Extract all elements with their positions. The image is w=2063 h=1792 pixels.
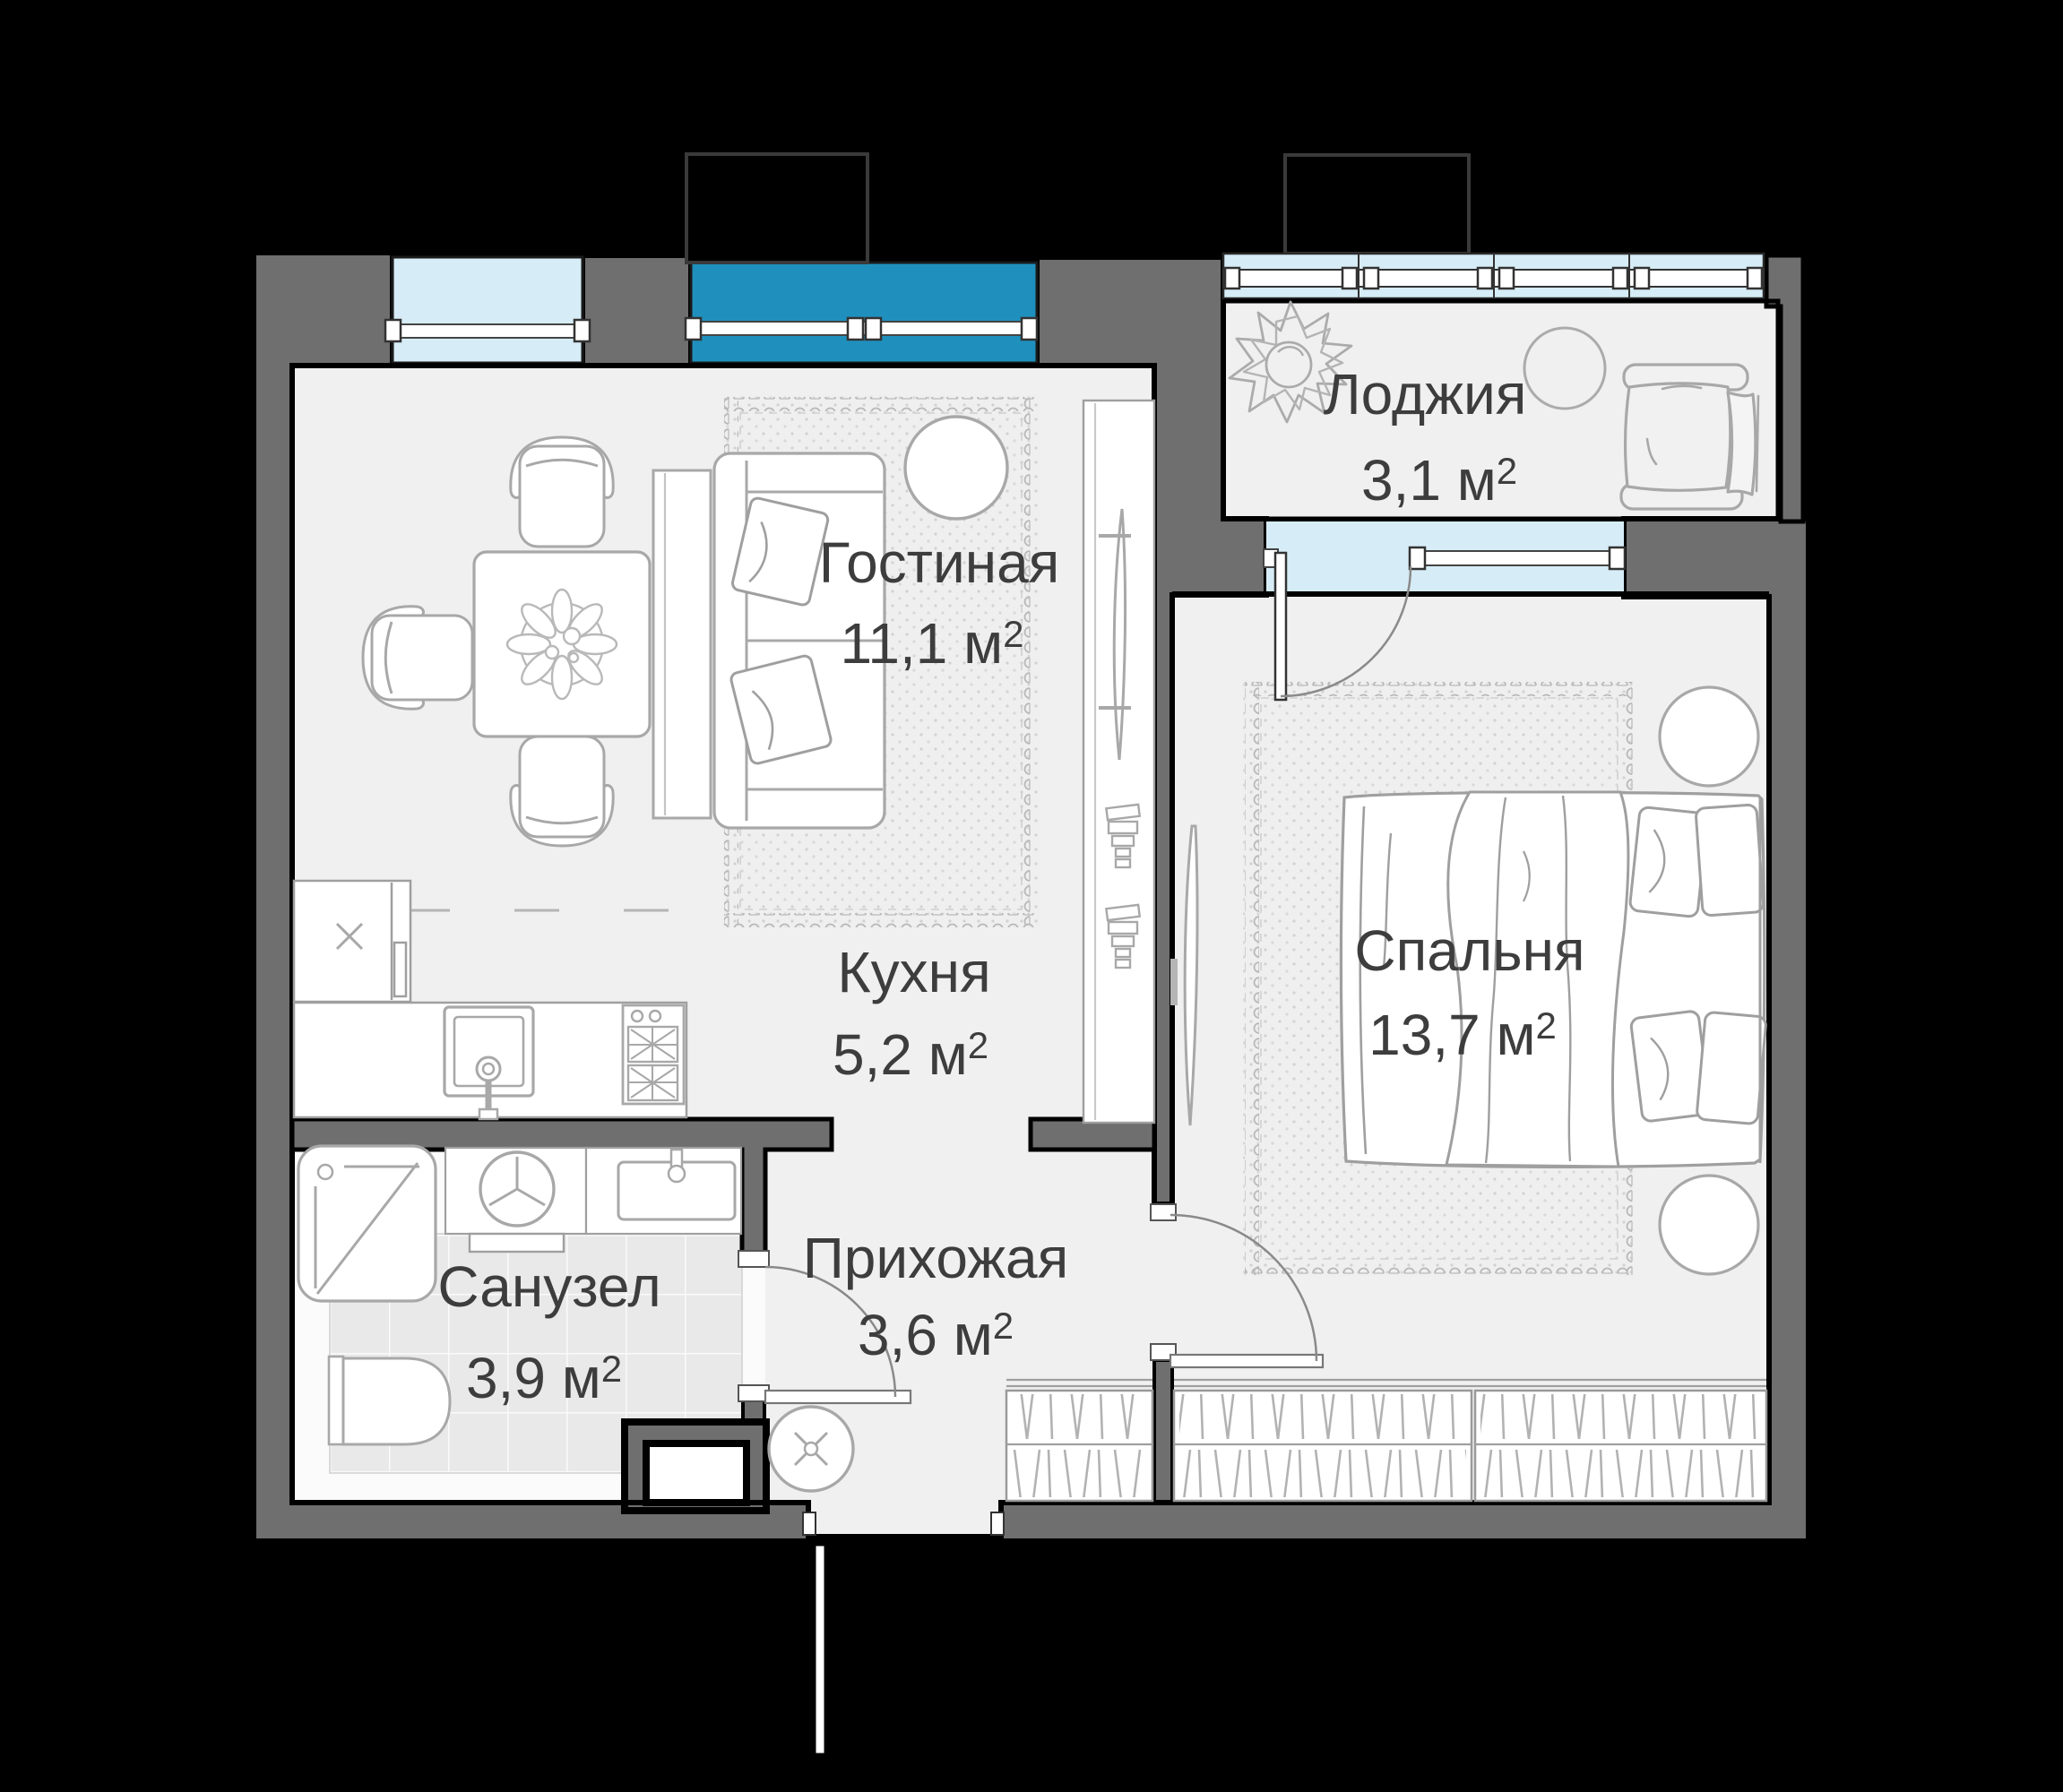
svg-text:Спальня: Спальня xyxy=(1354,918,1584,983)
svg-text:Прихожая: Прихожая xyxy=(803,1226,1069,1290)
svg-text:3,9 м2: 3,9 м2 xyxy=(466,1346,622,1410)
svg-text:Кухня: Кухня xyxy=(837,940,990,1004)
svg-text:3,6 м2: 3,6 м2 xyxy=(858,1303,1014,1367)
svg-text:3,1 м2: 3,1 м2 xyxy=(1361,448,1517,513)
svg-text:5,2 м2: 5,2 м2 xyxy=(833,1022,988,1087)
svg-text:Санузел: Санузел xyxy=(437,1254,660,1319)
svg-text:13,7 м2: 13,7 м2 xyxy=(1368,1003,1557,1067)
svg-text:Гостиная: Гостиная xyxy=(819,530,1060,595)
svg-text:11,1 м2: 11,1 м2 xyxy=(841,611,1024,676)
svg-text:Лоджия: Лоджия xyxy=(1324,362,1527,426)
